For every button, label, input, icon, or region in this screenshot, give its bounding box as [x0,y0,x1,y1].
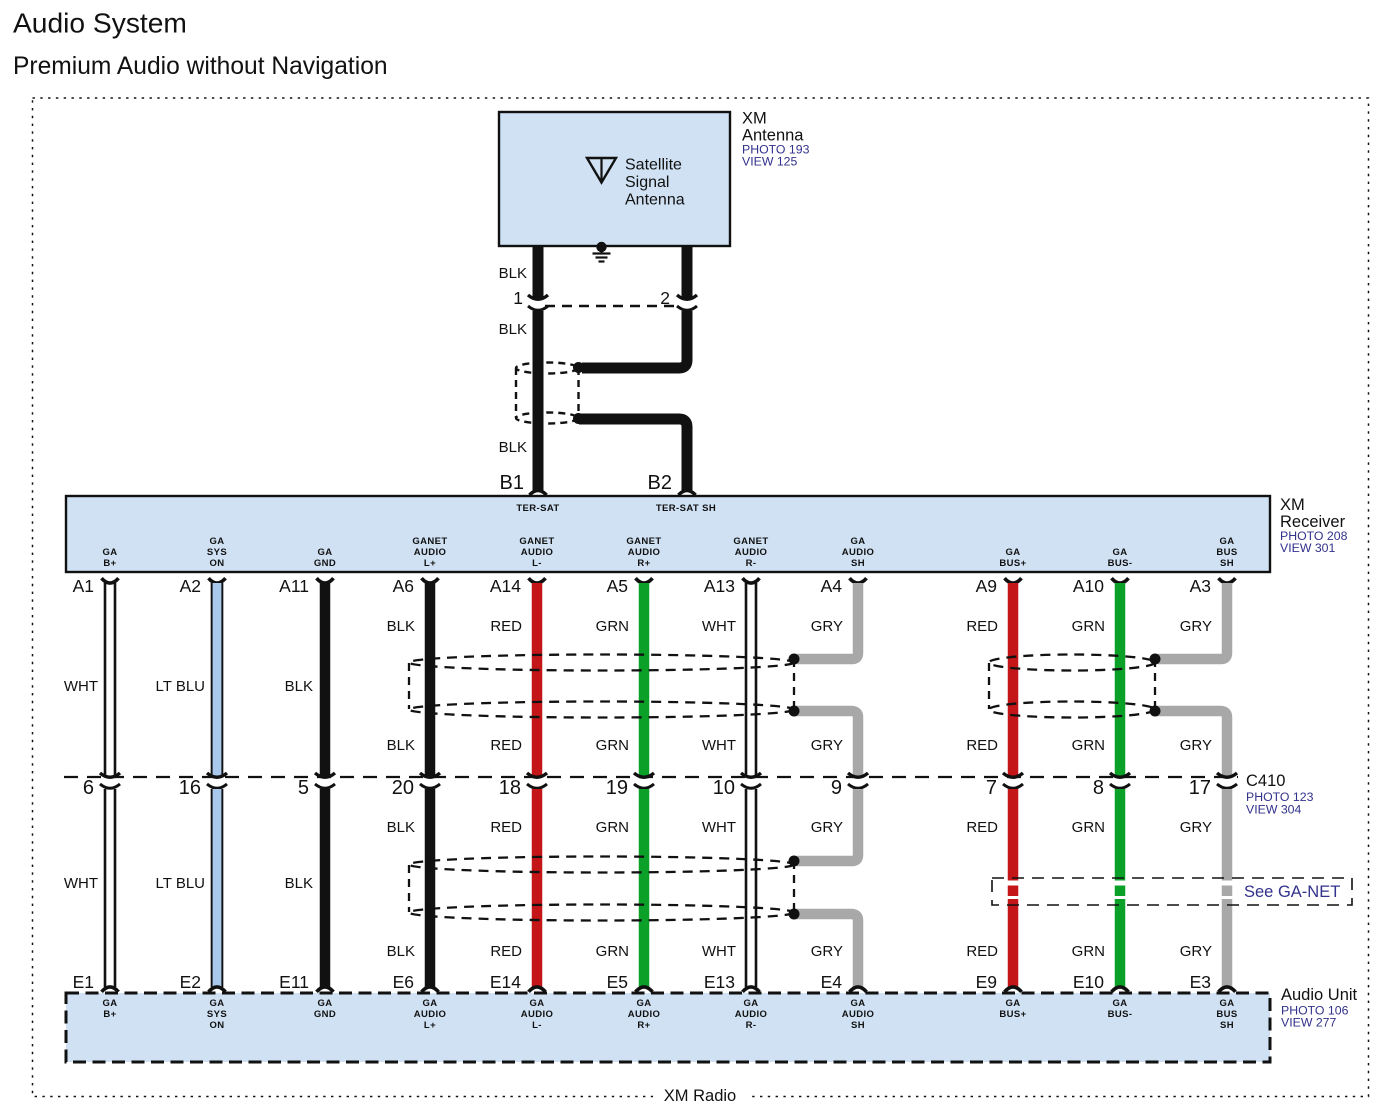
svg-text:R+: R+ [637,558,650,569]
svg-text:Antenna: Antenna [625,192,685,209]
svg-text:GRN: GRN [596,618,629,635]
svg-text:GRN: GRN [596,943,629,960]
svg-text:GA: GA [1219,998,1234,1009]
svg-text:GA: GA [1112,547,1127,558]
svg-text:7: 7 [986,777,997,799]
svg-text:BLK: BLK [499,265,527,282]
svg-text:GRY: GRY [811,943,843,960]
svg-text:Audio System: Audio System [13,7,187,39]
svg-text:BUS+: BUS+ [999,558,1026,569]
svg-text:RED: RED [966,737,998,754]
svg-text:WHT: WHT [64,678,98,695]
svg-text:WHT: WHT [702,737,736,754]
svg-text:VIEW 304: VIEW 304 [1246,803,1302,817]
svg-text:BLK: BLK [387,943,415,960]
svg-text:E3: E3 [1190,972,1211,992]
svg-text:TER-SAT: TER-SAT [516,503,559,514]
svg-text:Signal: Signal [625,174,669,191]
svg-text:L-: L- [532,1020,542,1031]
svg-text:AUDIO: AUDIO [521,547,554,558]
svg-text:BUS-: BUS- [1108,1009,1133,1020]
svg-text:Satellite: Satellite [625,157,682,174]
svg-text:AUDIO: AUDIO [735,547,768,558]
svg-text:VIEW 301: VIEW 301 [1280,541,1336,555]
svg-text:ON: ON [209,1020,224,1031]
svg-text:GA: GA [102,547,117,558]
svg-text:E11: E11 [279,972,309,992]
svg-text:GA: GA [850,536,865,547]
svg-text:A9: A9 [976,576,997,596]
svg-text:AUDIO: AUDIO [414,547,447,558]
svg-text:ON: ON [209,558,224,569]
svg-text:Audio Unit: Audio Unit [1281,986,1358,1004]
svg-text:BUS: BUS [1216,1009,1237,1020]
svg-text:B1: B1 [500,472,524,494]
svg-text:B+: B+ [103,558,116,569]
svg-text:5: 5 [298,777,309,799]
svg-text:SH: SH [851,1020,865,1031]
svg-text:AUDIO: AUDIO [842,1009,875,1020]
svg-text:A6: A6 [393,576,414,596]
svg-text:1: 1 [513,288,523,308]
svg-text:C410: C410 [1246,772,1285,790]
svg-text:6: 6 [83,777,94,799]
svg-text:RED: RED [490,943,522,960]
svg-text:E10: E10 [1073,972,1104,992]
svg-text:10: 10 [713,777,735,799]
svg-text:20: 20 [392,777,414,799]
svg-text:GA: GA [102,998,117,1009]
svg-text:A11: A11 [279,576,309,596]
svg-text:16: 16 [179,777,201,799]
svg-text:RED: RED [966,943,998,960]
svg-text:A10: A10 [1073,576,1104,596]
svg-text:AUDIO: AUDIO [842,547,875,558]
svg-text:AUDIO: AUDIO [521,1009,554,1020]
svg-text:RED: RED [490,737,522,754]
svg-text:BUS+: BUS+ [999,1009,1026,1020]
svg-text:See GA-NET: See GA-NET [1244,883,1340,901]
svg-text:L-: L- [532,558,542,569]
svg-text:SYS: SYS [207,547,227,558]
svg-text:GND: GND [314,1009,336,1020]
svg-text:LT BLU: LT BLU [156,875,205,892]
svg-text:A4: A4 [821,576,843,596]
svg-text:GRN: GRN [1072,618,1105,635]
svg-text:E9: E9 [976,972,997,992]
svg-text:WHT: WHT [702,819,736,836]
svg-text:RED: RED [966,819,998,836]
svg-text:GA: GA [636,998,651,1009]
svg-text:BLK: BLK [285,678,313,695]
svg-text:GA: GA [1005,547,1020,558]
svg-text:GRY: GRY [1180,943,1212,960]
svg-text:L+: L+ [424,558,436,569]
svg-text:XM: XM [1280,496,1305,514]
svg-text:E6: E6 [393,972,414,992]
svg-text:BLK: BLK [387,618,415,635]
svg-text:GANET: GANET [412,536,447,547]
svg-text:19: 19 [606,777,628,799]
svg-text:AUDIO: AUDIO [735,1009,768,1020]
svg-text:GRY: GRY [811,737,843,754]
svg-text:GA: GA [850,998,865,1009]
svg-text:AUDIO: AUDIO [628,547,661,558]
svg-text:XM: XM [742,110,767,128]
svg-text:BLK: BLK [387,819,415,836]
svg-text:GANET: GANET [519,536,554,547]
svg-text:BLK: BLK [387,737,415,754]
svg-text:GRN: GRN [1072,737,1105,754]
svg-text:GA: GA [209,998,224,1009]
svg-text:GA: GA [1112,998,1127,1009]
svg-text:SYS: SYS [207,1009,227,1020]
svg-text:L+: L+ [424,1020,436,1031]
svg-text:GANET: GANET [626,536,661,547]
svg-text:A5: A5 [607,576,628,596]
svg-text:8: 8 [1093,777,1104,799]
svg-text:A2: A2 [180,576,201,596]
svg-text:GA: GA [422,998,437,1009]
svg-text:RED: RED [490,618,522,635]
svg-text:GA: GA [317,998,332,1009]
svg-text:GRY: GRY [1180,819,1212,836]
svg-text:GND: GND [314,558,336,569]
svg-text:B2: B2 [648,472,672,494]
svg-text:E5: E5 [607,972,628,992]
svg-text:VIEW 277: VIEW 277 [1281,1016,1337,1030]
svg-text:GA: GA [1005,998,1020,1009]
svg-text:9: 9 [831,777,842,799]
svg-text:GRY: GRY [811,819,843,836]
svg-text:E13: E13 [704,972,735,992]
svg-text:GANET: GANET [733,536,768,547]
svg-text:2: 2 [660,288,670,308]
svg-text:17: 17 [1189,777,1211,799]
svg-text:WHT: WHT [702,618,736,635]
svg-text:VIEW 125: VIEW 125 [742,155,798,169]
svg-text:XM Radio: XM Radio [664,1087,736,1105]
svg-text:A1: A1 [73,576,94,596]
svg-text:BLK: BLK [499,439,527,456]
svg-text:RED: RED [966,618,998,635]
svg-text:AUDIO: AUDIO [628,1009,661,1020]
svg-text:SH: SH [1220,1020,1234,1031]
svg-text:E2: E2 [180,972,201,992]
svg-text:E4: E4 [821,972,843,992]
svg-text:GA: GA [743,998,758,1009]
svg-text:BLK: BLK [285,875,313,892]
svg-text:R-: R- [746,558,757,569]
svg-text:SH: SH [1220,558,1234,569]
svg-text:R+: R+ [637,1020,650,1031]
svg-text:Premium Audio without Navigati: Premium Audio without Navigation [13,53,388,80]
svg-text:RED: RED [490,819,522,836]
svg-text:E1: E1 [73,972,94,992]
svg-text:LT BLU: LT BLU [156,678,205,695]
svg-text:GRY: GRY [1180,618,1212,635]
svg-text:GRN: GRN [596,819,629,836]
svg-text:A14: A14 [490,576,521,596]
svg-text:E14: E14 [490,972,521,992]
svg-text:GA: GA [209,536,224,547]
svg-text:GA: GA [317,547,332,558]
svg-text:GRN: GRN [1072,819,1105,836]
svg-text:GA: GA [529,998,544,1009]
svg-text:GA: GA [1219,536,1234,547]
svg-text:WHT: WHT [64,875,98,892]
svg-text:AUDIO: AUDIO [414,1009,447,1020]
svg-text:GRN: GRN [596,737,629,754]
svg-text:GRN: GRN [1072,943,1105,960]
svg-text:GRY: GRY [811,618,843,635]
svg-text:A13: A13 [704,576,735,596]
svg-text:BUS-: BUS- [1108,558,1133,569]
svg-text:18: 18 [499,777,521,799]
svg-text:BUS: BUS [1216,547,1237,558]
svg-text:BLK: BLK [499,321,527,338]
svg-text:A3: A3 [1190,576,1211,596]
svg-text:TER-SAT SH: TER-SAT SH [656,503,716,514]
svg-text:GRY: GRY [1180,737,1212,754]
svg-text:B+: B+ [103,1009,116,1020]
svg-text:SH: SH [851,558,865,569]
svg-text:WHT: WHT [702,943,736,960]
svg-text:R-: R- [746,1020,757,1031]
